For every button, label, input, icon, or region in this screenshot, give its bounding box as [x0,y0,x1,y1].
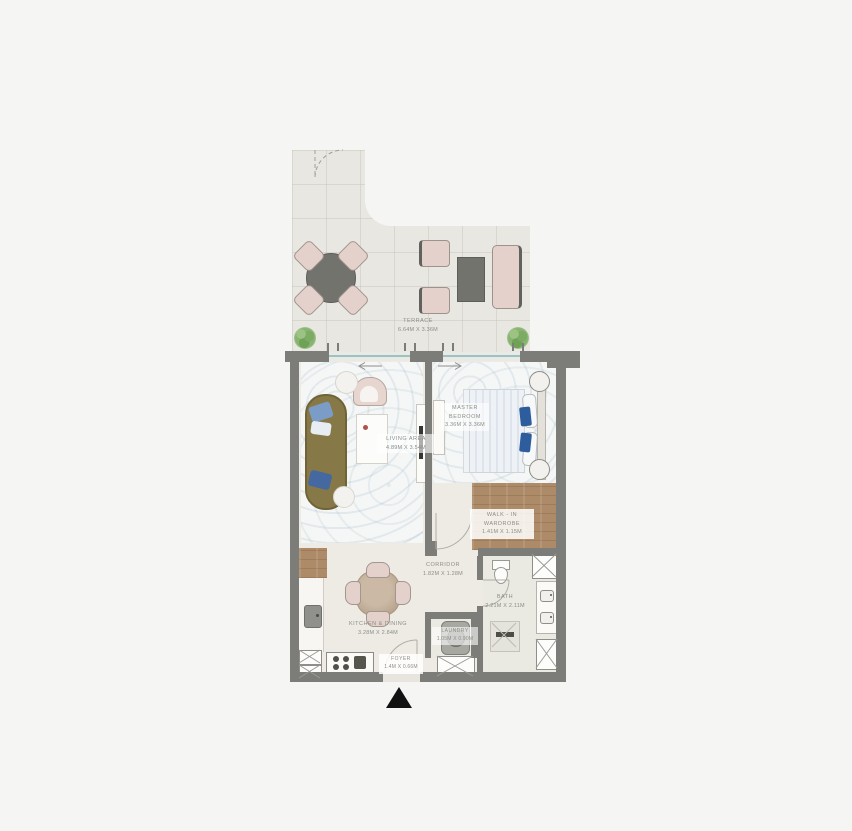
living-armchair [353,377,387,406]
window [443,352,520,361]
pouf [333,486,355,508]
room-label-living-area: LIVING AREA 4.89m X 3.54m [377,434,435,453]
sofa-cushion [310,421,332,437]
stove [326,652,374,674]
wall [410,351,443,362]
oven-icon [354,656,366,669]
tree-icon [294,327,316,349]
outdoor-armchair [419,240,450,267]
room-dims: 2.21m X 2.11m [483,602,527,611]
wall [478,548,566,556]
tree-icon [507,327,529,349]
room-name: TERRACE [403,318,433,324]
burner-icon [343,656,349,662]
kitchen-counter-wood [299,548,327,578]
wall [556,360,566,682]
room-name: BATH [497,594,513,600]
duct-shaft [299,650,322,665]
accent-pillow [519,432,532,452]
basin-icon [540,590,554,602]
bed [469,389,525,473]
window-tick [404,343,406,351]
dining-chair [395,581,411,605]
basin-icon [540,612,554,624]
room-name: CORRIDOR [426,562,460,568]
room-dims: 1.05m X 0.90m [433,636,477,644]
entrance-arrow-icon [386,687,412,708]
room-name: MASTER BEDROOM [449,405,481,420]
kitchen-sink [304,605,322,628]
entrance-threshold [383,672,420,682]
burner-icon [343,664,349,670]
room-name: KITCHEN & DINING [349,621,407,627]
dining-chair [366,562,390,578]
window-tick [337,343,339,351]
wall [477,556,483,580]
room-name: WALK - IN WARDROBE [484,512,520,527]
room-dims: 3.28M X 2.84M [338,629,418,638]
dining-chair [345,581,361,605]
window-tick [452,343,454,351]
accent-pillow [519,406,532,426]
room-dims: 3.36m X 3.36m [442,421,488,430]
room-dims: 6.64M X 3.36M [368,326,468,335]
wall [290,672,383,682]
wall [290,351,299,682]
shower-channel [496,632,514,637]
outdoor-sofa [492,245,522,309]
room-label-foyer: FOYER 1.4m X 0.66m [379,654,423,674]
wall [425,541,437,556]
room-name: LAUNDRY [441,628,468,634]
room-label-walk-in-wardrobe: WALK - IN WARDROBE 1.41m X 1.15m [470,509,534,539]
room-dims: 1.41m X 1.15m [471,528,533,537]
room-name: LIVING AREA [386,436,426,442]
room-label-kitchen-dining: KITCHEN & DINING 3.28M X 2.84M [338,620,418,637]
bath-vanity [536,581,558,634]
room-label-master-bedroom: MASTER BEDROOM 3.36m X 3.36m [441,403,489,431]
bedside-table [529,371,550,392]
burner-icon [333,656,339,662]
wall [420,672,566,682]
room-dims: 1.4m X 0.66m [380,664,422,672]
outdoor-armchair [419,287,450,314]
window-tick [522,343,524,351]
floor-plan: TERRACE 6.64M X 3.36M LIVING AREA 4.89m … [0,0,852,831]
outdoor-coffee-table [457,257,485,302]
room-label-corridor: CORRIDOR 1.82m X 1.28m [420,561,466,578]
room-label-terrace: TERRACE 6.64M X 3.36M [368,317,468,334]
window [329,352,410,361]
burner-icon [333,664,339,670]
window-tick [414,343,416,351]
window-tick [512,343,514,351]
wall [425,612,431,658]
window-tick [327,343,329,351]
duct-shaft [532,554,558,579]
wall [425,362,432,556]
room-label-bath: BATH 2.21m X 2.11m [483,593,527,610]
pouf [335,371,358,394]
window-tick [442,343,444,351]
room-label-laundry: LAUNDRY 1.05m X 0.90m [432,627,478,645]
room-name: FOYER [391,656,411,662]
room-dims: 1.82m X 1.28m [420,570,466,579]
bedside-table [529,459,550,480]
terrace-corner-notch [365,149,531,226]
room-dims: 4.89m X 3.54m [378,444,434,453]
